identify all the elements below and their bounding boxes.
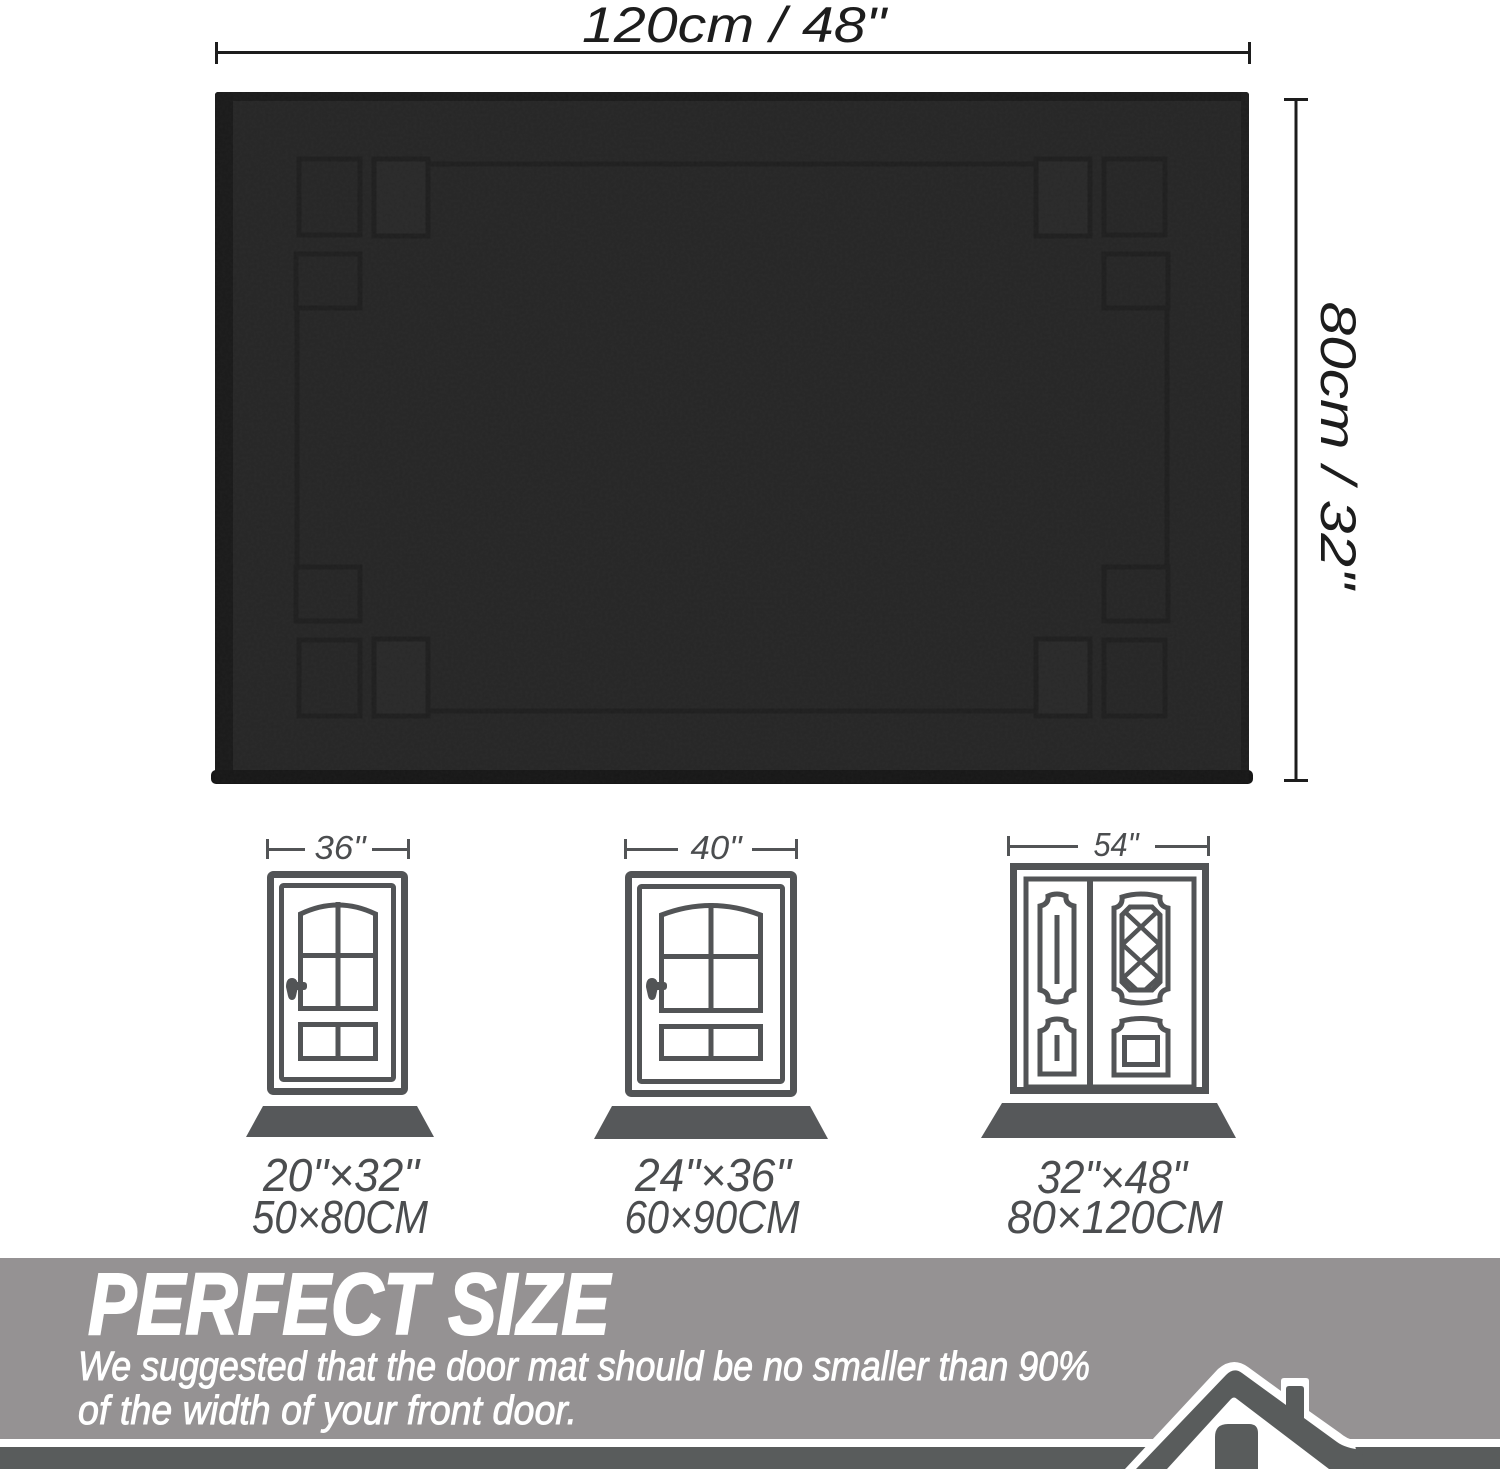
- svg-text:40": 40": [691, 829, 743, 866]
- svg-text:We suggested that the door mat: We suggested that the door mat should be…: [78, 1343, 1090, 1389]
- svg-text:54": 54": [1094, 826, 1140, 863]
- svg-text:80×120CM: 80×120CM: [1007, 1191, 1224, 1243]
- svg-text:60×90CM: 60×90CM: [625, 1191, 801, 1243]
- svg-text:120cm / 48": 120cm / 48": [582, 0, 889, 53]
- svg-text:of the width of your front doo: of the width of your front door.: [78, 1387, 577, 1433]
- svg-text:50×80CM: 50×80CM: [252, 1191, 429, 1243]
- svg-text:36": 36": [315, 829, 367, 866]
- svg-text:PERFECT SIZE: PERFECT SIZE: [88, 1256, 612, 1353]
- svg-text:80cm / 32": 80cm / 32": [1310, 302, 1366, 592]
